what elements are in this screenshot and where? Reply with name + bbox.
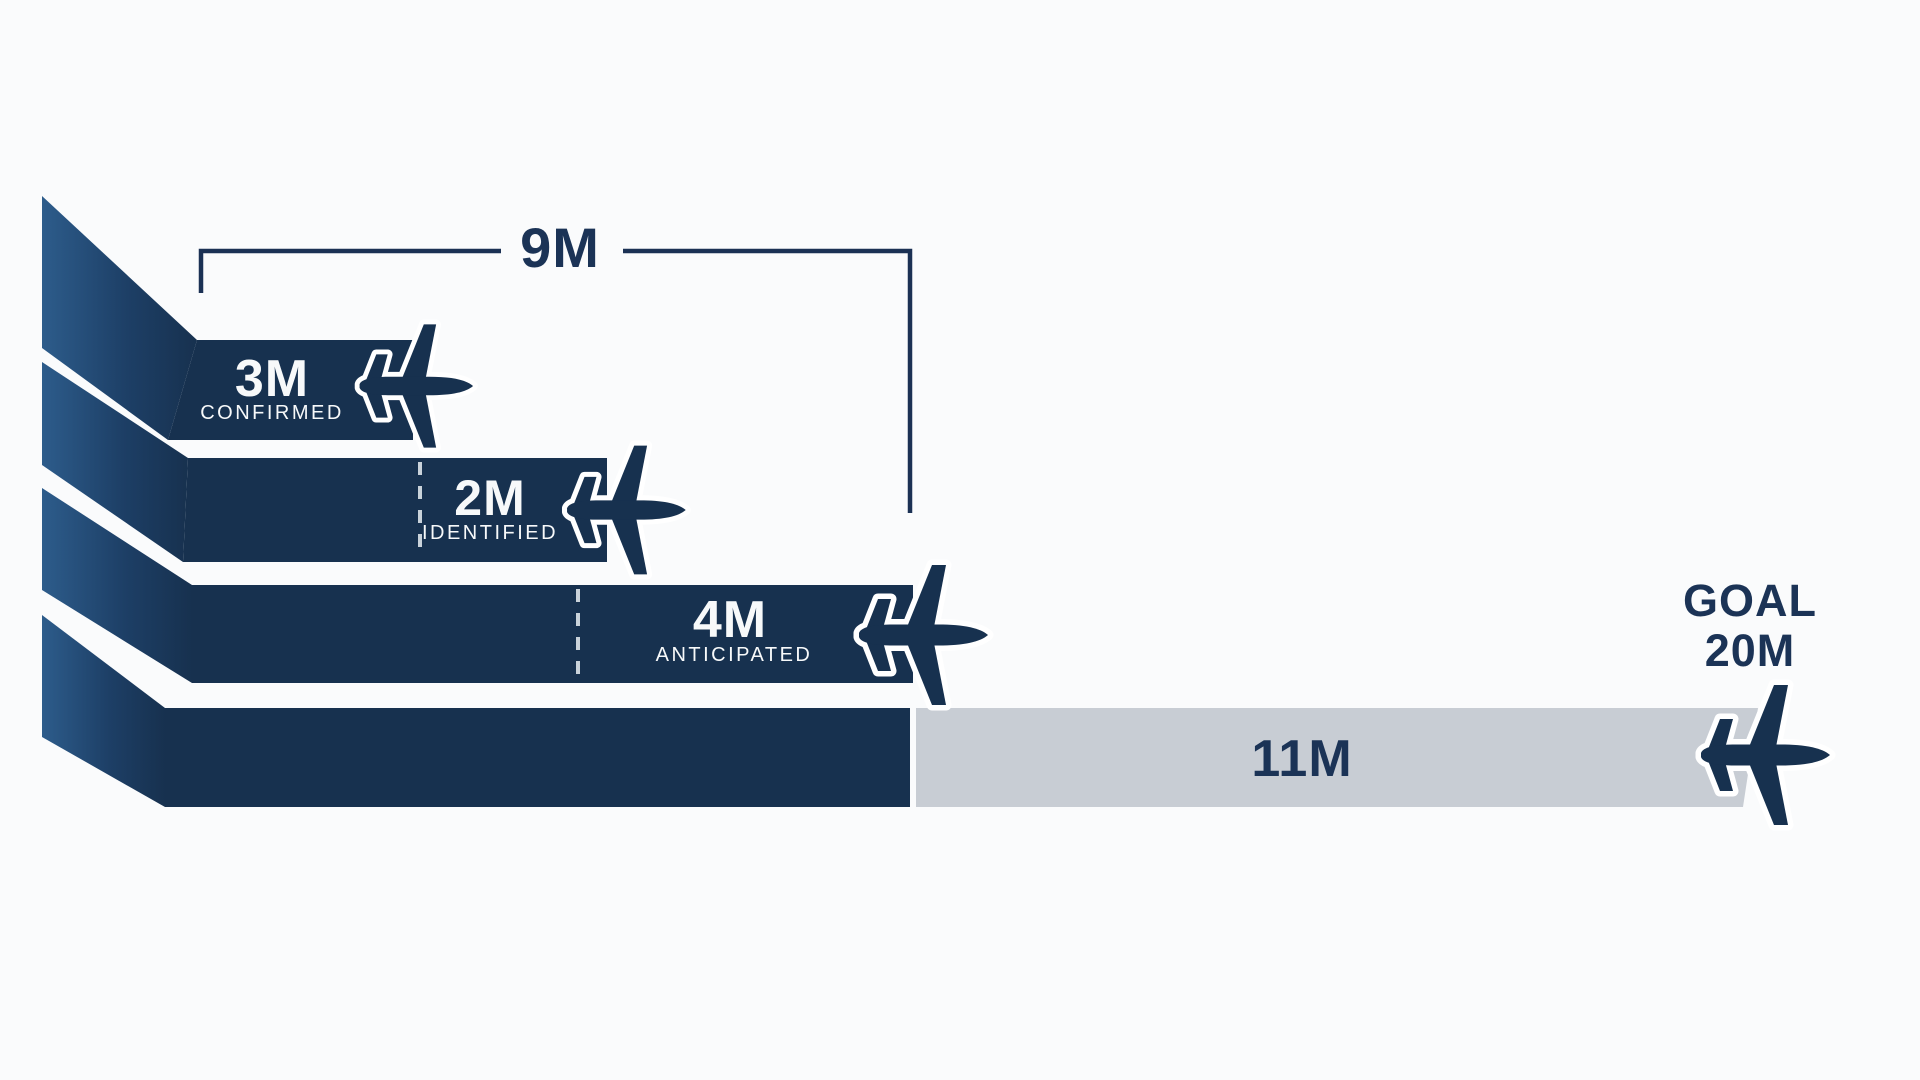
bar-identified (183, 458, 607, 562)
bar-confirmed-value: 3M (235, 350, 309, 408)
bar-anticipated (192, 585, 913, 683)
bar-total (165, 708, 910, 807)
remaining-label: 11M (1251, 730, 1352, 788)
bar-anticipated-value: 4M (693, 591, 767, 649)
goal-value: 20M (1705, 625, 1796, 676)
bar-confirmed-status: CONFIRMED (200, 402, 344, 424)
goal-title: GOAL (1683, 575, 1817, 626)
bar-anticipated-status: ANTICIPATED (656, 644, 813, 666)
funnel-progress-chart: 9M 3M CONFIRMED 2M IDENTIFIED 4M ANTICIP… (0, 0, 1920, 1080)
bar-identified-value: 2M (454, 470, 525, 526)
bracket-label: 9M (520, 216, 600, 279)
bar-identified-status: IDENTIFIED (422, 522, 558, 544)
infographic-canvas: 9M 3M CONFIRMED 2M IDENTIFIED 4M ANTICIP… (0, 0, 1920, 1080)
